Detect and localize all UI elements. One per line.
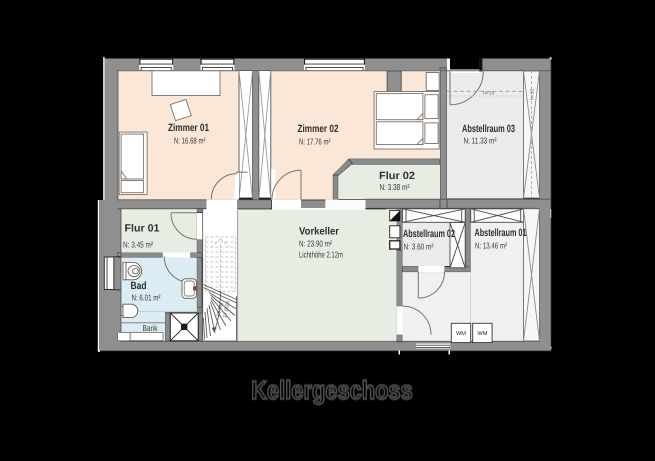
svg-text:N: 3.60 m²: N: 3.60 m² [404,242,434,252]
svg-text:h=12: h=12 [530,89,536,100]
svg-text:Flur 01: Flur 01 [125,223,160,235]
svg-text:N: 3.45 m²: N: 3.45 m² [123,240,153,250]
svg-text:N: 17.76 m²: N: 17.76 m² [299,137,331,147]
svg-text:Lichthöhe 2.12m: Lichthöhe 2.12m [299,250,343,260]
svg-text:h=15: h=15 [483,91,494,97]
svg-text:N: 13.46 m²: N: 13.46 m² [475,241,507,251]
svg-text:WM: WM [477,331,487,337]
svg-text:N: 23.90 m²: N: 23.90 m² [299,239,332,249]
svg-text:Zimmer 02: Zimmer 02 [298,123,339,135]
svg-text:Flur 02: Flur 02 [379,170,415,182]
svg-text:Abstellraum 03: Abstellraum 03 [462,123,515,135]
svg-text:Abstellraum 02: Abstellraum 02 [403,228,455,240]
svg-text:N: 6.01 m²: N: 6.01 m² [132,293,161,303]
svg-text:Zimmer 01: Zimmer 01 [168,122,209,134]
svg-text:Bad: Bad [131,280,147,292]
svg-text:Abstellraum 01: Abstellraum 01 [475,227,527,239]
svg-text:Bank: Bank [143,323,159,333]
svg-text:N: 11.33 m²: N: 11.33 m² [464,136,497,146]
svg-text:N: 3.38 m²: N: 3.38 m² [380,182,410,192]
svg-text:Kellergeschoss: Kellergeschoss [251,375,412,405]
svg-text:WM: WM [456,331,466,337]
svg-text:N: 16.68 m²: N: 16.68 m² [174,136,206,146]
svg-text:Vorkeller: Vorkeller [299,226,339,238]
